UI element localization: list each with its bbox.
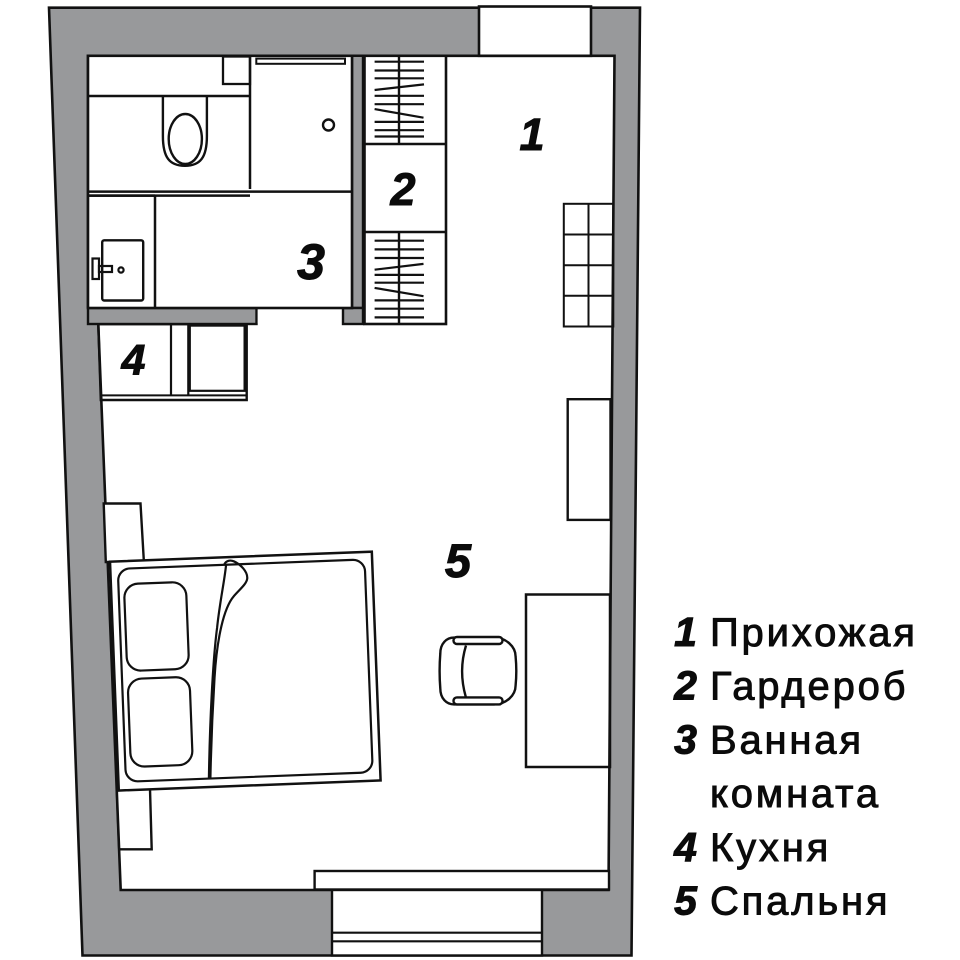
svg-text:Кухня: Кухня	[710, 826, 831, 870]
svg-text:2: 2	[673, 663, 697, 709]
svg-text:5: 5	[674, 878, 698, 924]
svg-text:4: 4	[673, 824, 697, 870]
svg-text:комната: комната	[710, 772, 881, 816]
svg-text:Ванная: Ванная	[710, 718, 864, 762]
svg-text:Гардероб: Гардероб	[710, 665, 908, 709]
svg-text:1: 1	[674, 609, 697, 655]
svg-text:2: 2	[389, 164, 415, 215]
svg-text:1: 1	[519, 109, 544, 160]
svg-text:3: 3	[297, 234, 325, 290]
svg-text:5: 5	[445, 534, 472, 587]
svg-text:3: 3	[674, 716, 697, 762]
svg-text:Прихожая: Прихожая	[710, 611, 918, 655]
svg-text:4: 4	[121, 337, 146, 385]
svg-text:Спальня: Спальня	[710, 880, 890, 924]
